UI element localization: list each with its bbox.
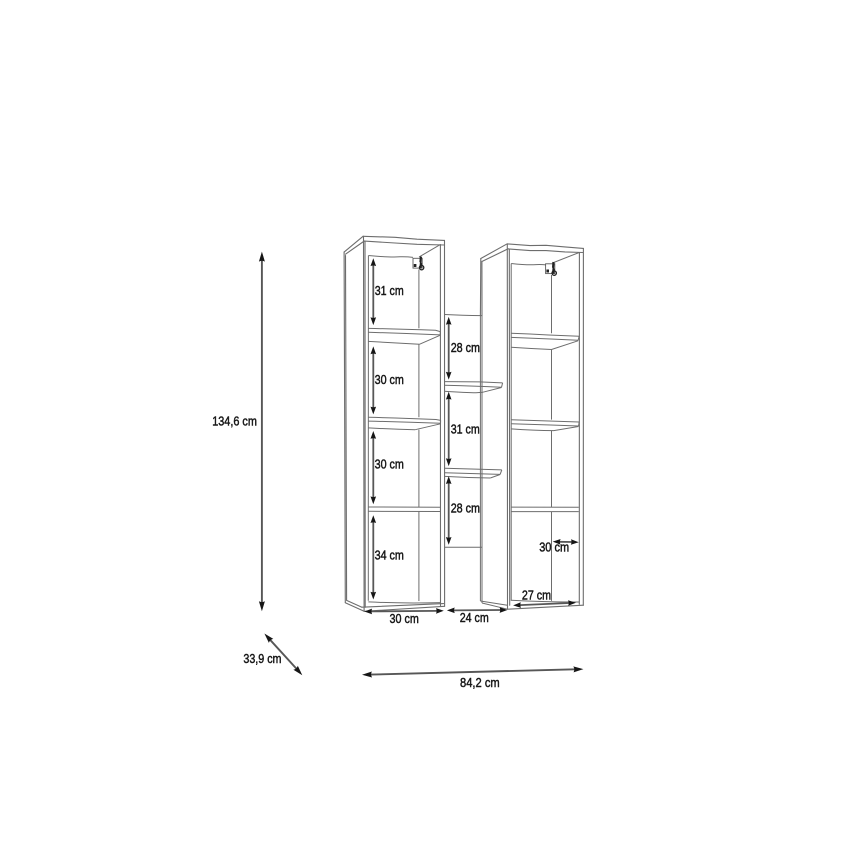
- svg-text:30 cm: 30 cm: [539, 540, 569, 554]
- svg-text:33,9 cm: 33,9 cm: [243, 652, 281, 666]
- svg-text:31 cm: 31 cm: [375, 284, 404, 298]
- svg-text:34 cm: 34 cm: [375, 549, 404, 563]
- svg-text:30 cm: 30 cm: [375, 373, 404, 387]
- svg-text:28 cm: 28 cm: [451, 501, 480, 515]
- svg-text:31 cm: 31 cm: [451, 423, 480, 437]
- svg-text:84,2 cm: 84,2 cm: [460, 676, 500, 690]
- svg-text:24 cm: 24 cm: [460, 611, 489, 625]
- svg-text:30 cm: 30 cm: [375, 457, 404, 471]
- svg-text:27 cm: 27 cm: [522, 588, 551, 602]
- svg-text:30 cm: 30 cm: [390, 612, 419, 626]
- svg-text:28 cm: 28 cm: [451, 341, 480, 355]
- svg-text:134,6 cm: 134,6 cm: [212, 414, 257, 428]
